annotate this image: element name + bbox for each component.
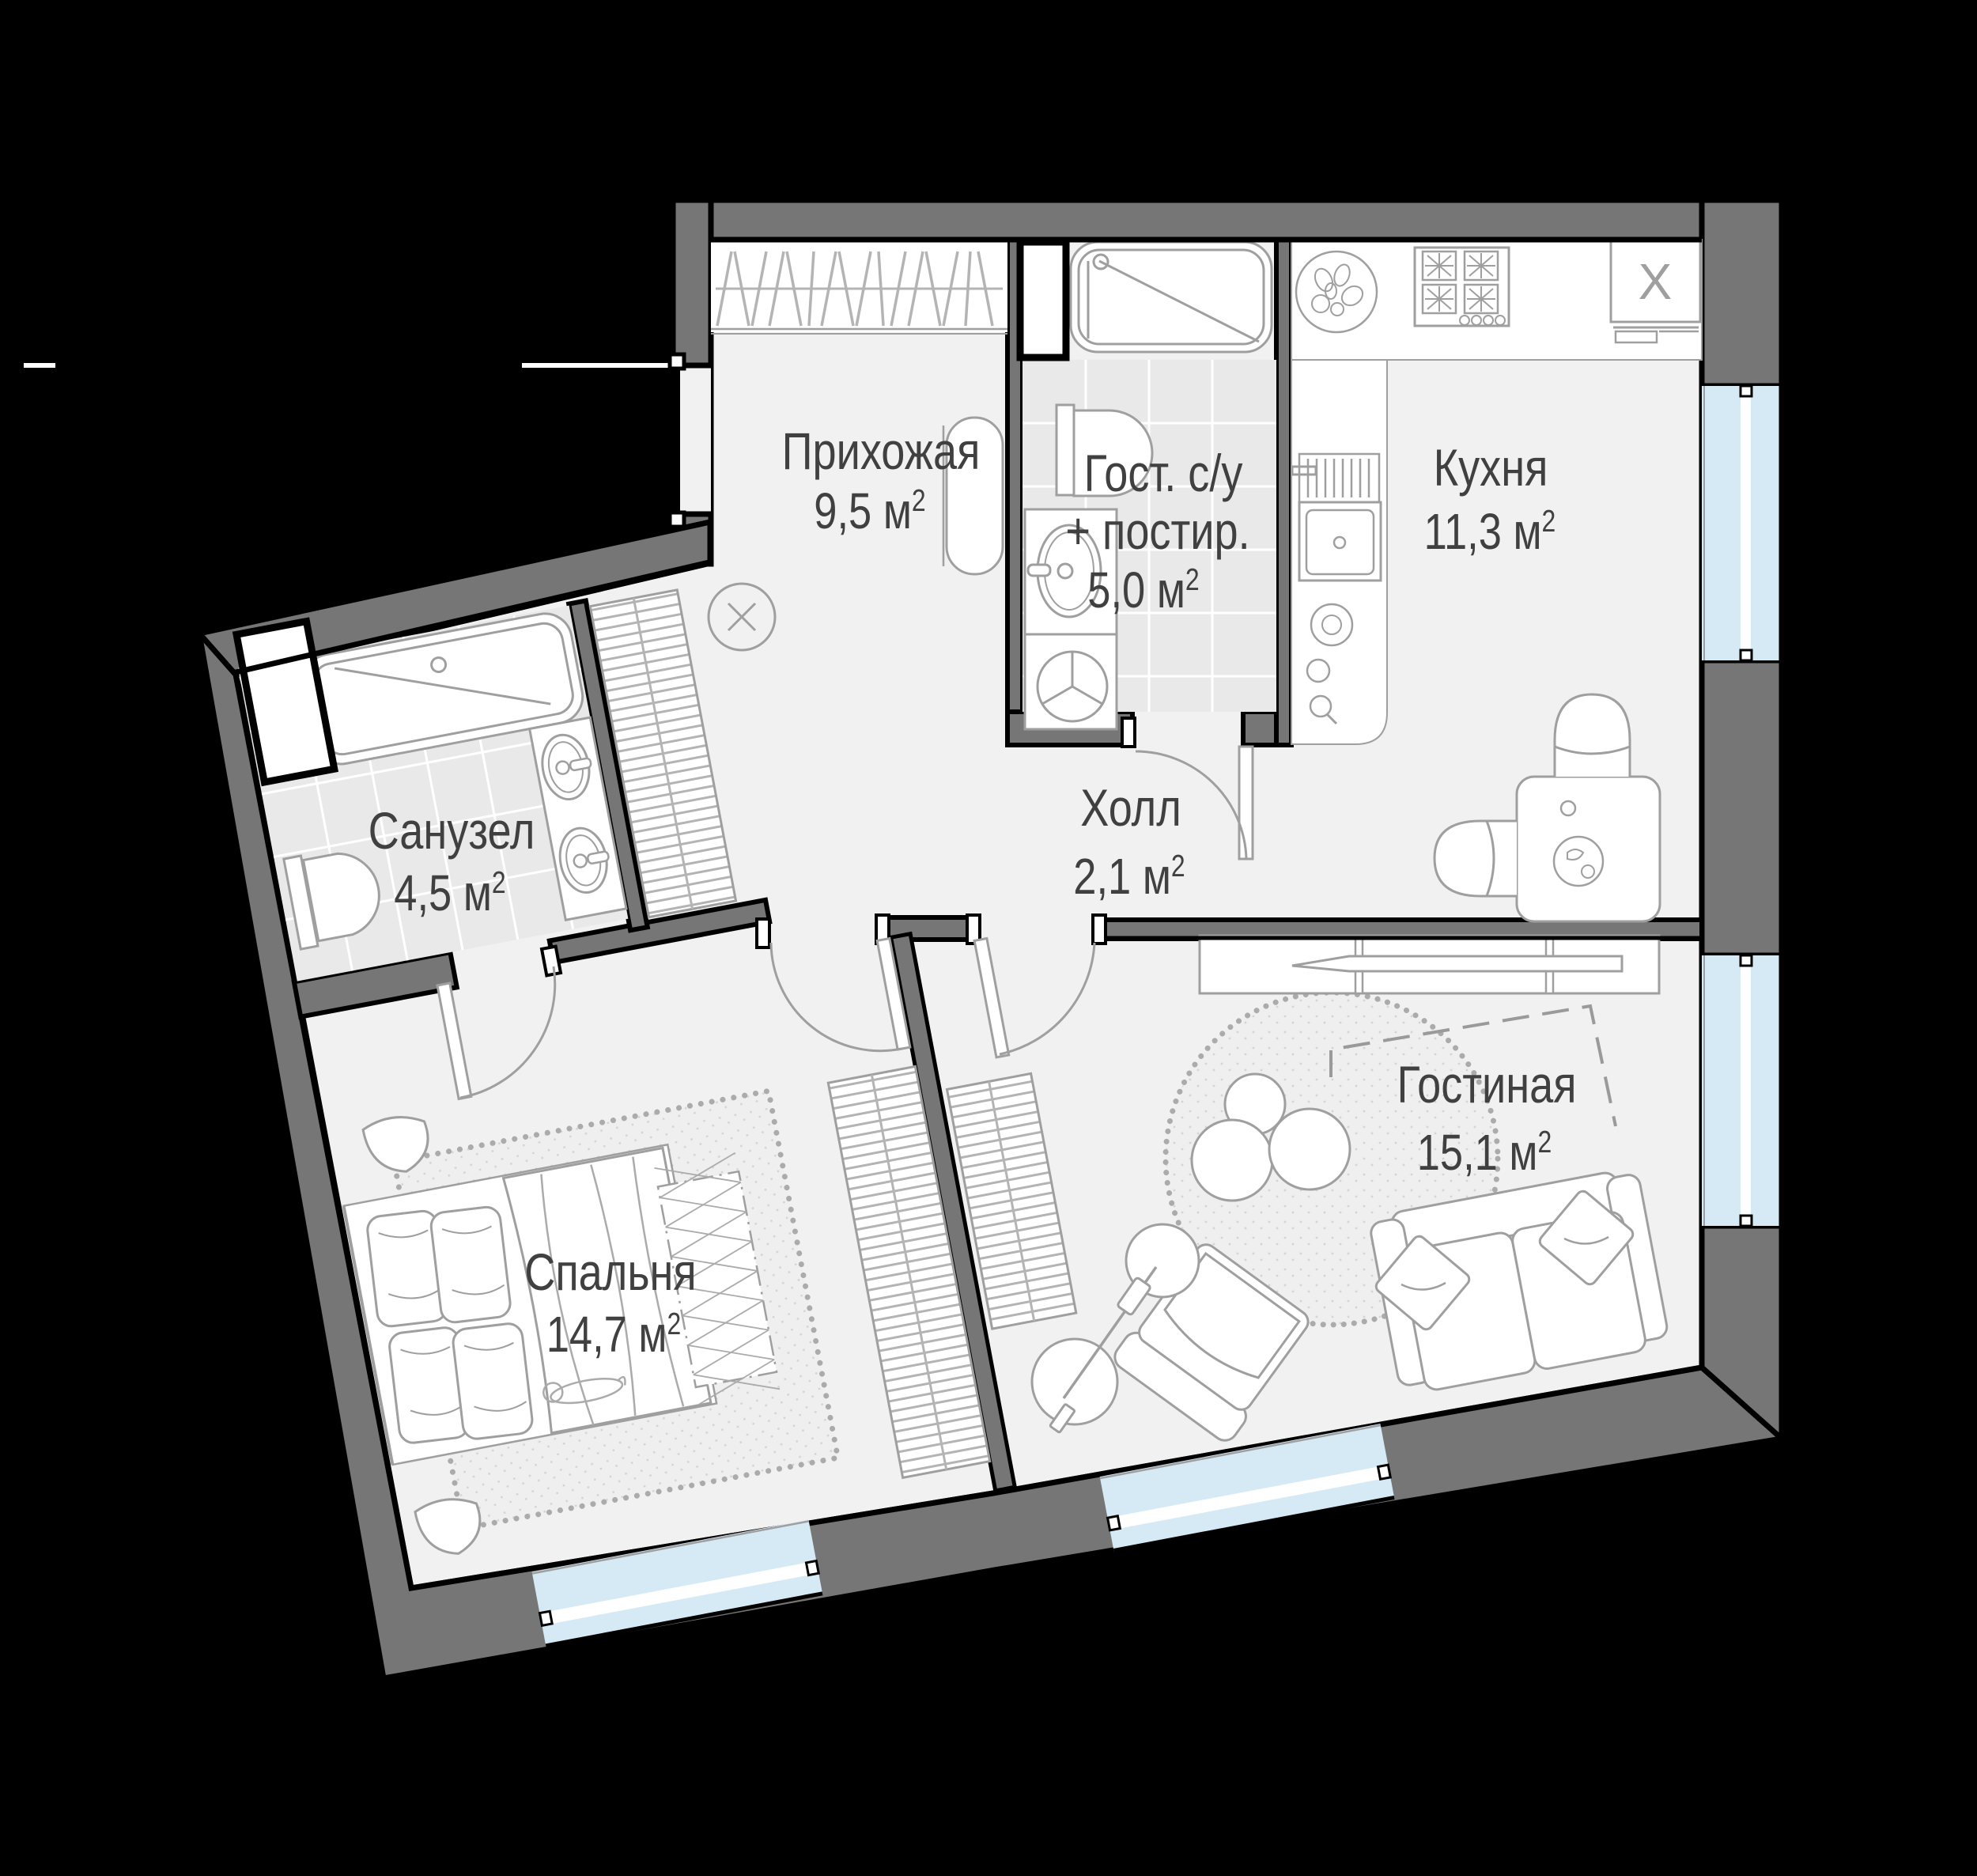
svg-text:4,5 м2: 4,5 м2 xyxy=(394,865,505,921)
svg-text:Спальня: Спальня xyxy=(524,1242,696,1301)
svg-text:Санузел: Санузел xyxy=(369,801,535,860)
svg-text:Кухня: Кухня xyxy=(1434,438,1548,497)
svg-text:Гост. с/у: Гост. с/у xyxy=(1084,444,1244,502)
svg-text:9,5 м2: 9,5 м2 xyxy=(814,483,925,539)
svg-text:15,1 м2: 15,1 м2 xyxy=(1417,1125,1552,1181)
svg-text:Холл: Холл xyxy=(1080,778,1181,837)
svg-text:Прихожая: Прихожая xyxy=(782,422,981,480)
svg-text:X: X xyxy=(1639,253,1673,310)
svg-text:+ постир.: + постир. xyxy=(1065,501,1249,560)
svg-text:2,1 м2: 2,1 м2 xyxy=(1073,849,1185,905)
svg-text:14,7 м2: 14,7 м2 xyxy=(546,1307,682,1363)
svg-text:Гостиная: Гостиная xyxy=(1397,1055,1576,1114)
svg-text:11,3 м2: 11,3 м2 xyxy=(1424,504,1556,560)
svg-text:5,0 м2: 5,0 м2 xyxy=(1087,562,1199,618)
